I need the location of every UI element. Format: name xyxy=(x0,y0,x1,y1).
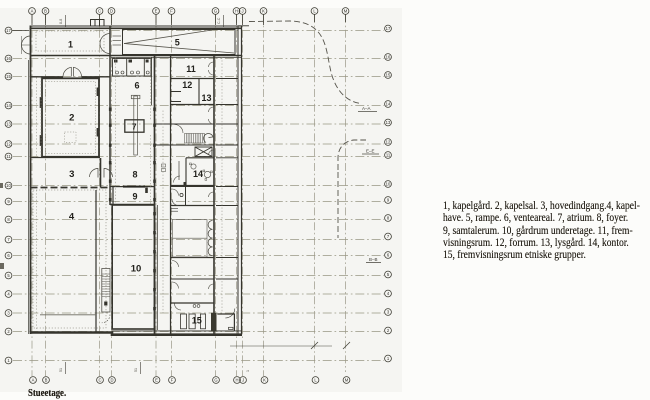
svg-text:10: 10 xyxy=(386,182,391,187)
svg-text:12: 12 xyxy=(386,140,391,145)
svg-text:11: 11 xyxy=(6,154,11,159)
svg-text:12: 12 xyxy=(182,80,192,90)
svg-text:B–B: B–B xyxy=(369,257,378,262)
svg-text:10: 10 xyxy=(131,263,142,274)
svg-text:M: M xyxy=(344,9,348,14)
svg-text:F: F xyxy=(170,9,173,14)
svg-text:14: 14 xyxy=(6,103,11,108)
svg-text:16: 16 xyxy=(6,56,11,61)
svg-text:10: 10 xyxy=(6,183,11,188)
svg-text:A: A xyxy=(31,9,34,14)
svg-text:17: 17 xyxy=(6,28,11,33)
svg-text:G: G xyxy=(214,378,217,383)
svg-text:B: B xyxy=(44,9,47,14)
svg-text:K: K xyxy=(262,9,265,14)
svg-text:G: G xyxy=(214,9,217,14)
svg-text:3: 3 xyxy=(69,169,74,180)
svg-text:K: K xyxy=(263,378,266,383)
svg-text:15: 15 xyxy=(192,316,202,326)
svg-text:B: B xyxy=(45,378,48,383)
svg-text:4: 4 xyxy=(69,211,75,222)
svg-text:E–E: E–E xyxy=(366,149,375,154)
svg-text:8-8: 8-8 xyxy=(59,19,63,24)
svg-text:D: D xyxy=(110,9,113,14)
svg-text:M: M xyxy=(345,378,349,383)
svg-text:F: F xyxy=(171,378,174,383)
svg-text:9: 9 xyxy=(132,192,137,202)
svg-text:E: E xyxy=(155,378,158,383)
svg-text:12: 12 xyxy=(6,142,11,147)
svg-text:11: 11 xyxy=(186,64,196,74)
svg-text:J: J xyxy=(242,378,244,383)
svg-text:11: 11 xyxy=(386,153,391,158)
svg-text:A–A: A–A xyxy=(362,106,371,111)
svg-text:14: 14 xyxy=(193,169,203,179)
svg-text:6: 6 xyxy=(134,81,139,91)
svg-text:51: 51 xyxy=(134,368,138,372)
svg-text:7: 7 xyxy=(132,122,137,132)
svg-text:J: J xyxy=(241,9,243,14)
svg-text:E: E xyxy=(155,9,158,14)
svg-text:5: 5 xyxy=(175,38,180,48)
svg-text:51: 51 xyxy=(59,368,63,372)
svg-text:C: C xyxy=(98,9,101,14)
svg-text:15: 15 xyxy=(386,73,391,78)
svg-text:H: H xyxy=(235,378,238,383)
svg-text:14: 14 xyxy=(386,102,391,107)
svg-text:1: 1 xyxy=(246,370,250,372)
svg-text:C-C: C-C xyxy=(217,17,221,24)
svg-text:15: 15 xyxy=(6,74,11,79)
svg-text:13: 13 xyxy=(386,120,391,125)
svg-text:13: 13 xyxy=(201,93,211,103)
svg-text:H: H xyxy=(235,9,238,14)
svg-text:A: A xyxy=(32,378,35,383)
svg-text:8: 8 xyxy=(132,170,137,180)
svg-text:16: 16 xyxy=(386,55,391,60)
svg-text:1: 1 xyxy=(68,40,73,50)
svg-text:2: 2 xyxy=(69,112,74,123)
svg-text:13: 13 xyxy=(6,122,11,127)
svg-text:17: 17 xyxy=(386,26,391,31)
svg-text:D: D xyxy=(110,378,113,383)
svg-text:C: C xyxy=(98,378,101,383)
